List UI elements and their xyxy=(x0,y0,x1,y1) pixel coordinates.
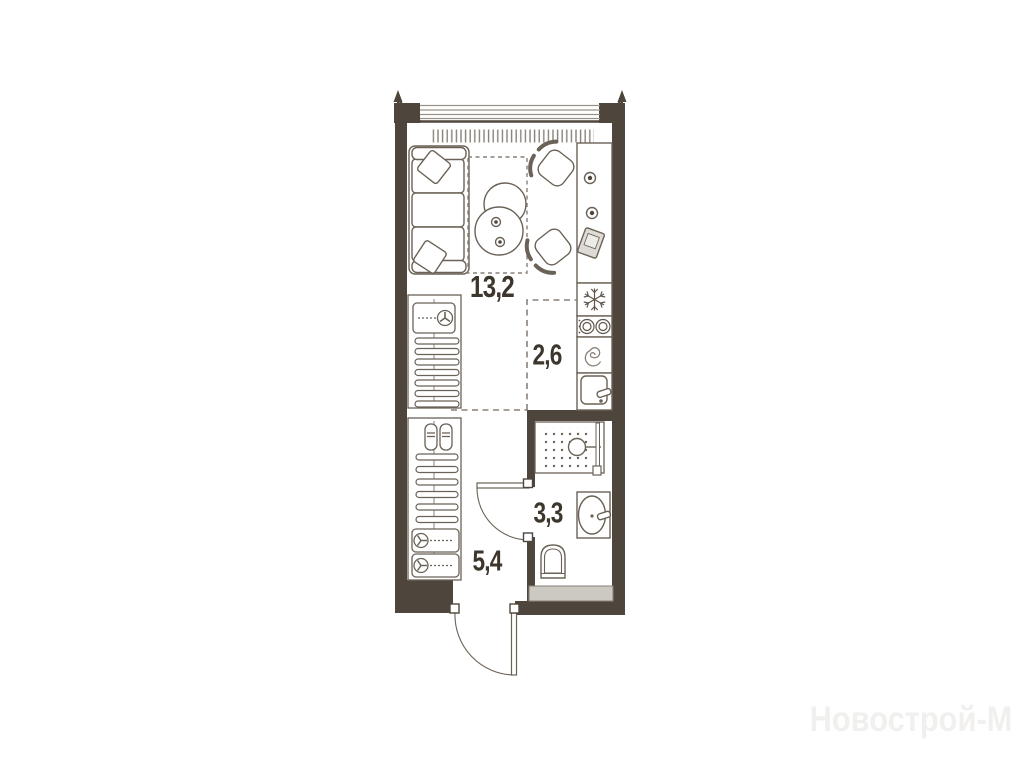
coffee-tables-icon xyxy=(475,183,526,255)
watermark: Новострой-М xyxy=(809,700,1012,740)
utility-shaft xyxy=(529,586,613,601)
hanger-icon xyxy=(415,338,459,407)
room-area-label-kitchen: 2,6 xyxy=(532,340,561,373)
kitchen-sink-icon xyxy=(581,376,612,404)
entry-door-swing-icon xyxy=(450,604,519,675)
room-area-label-hallway: 5,4 xyxy=(472,546,501,579)
room-area-label-living: 13,2 xyxy=(470,269,514,305)
chair-icon xyxy=(523,136,580,194)
wall-bottom-left xyxy=(395,580,453,613)
wall-left xyxy=(395,115,407,582)
floorplan-page: 13,2 2,6 3,3 5,4 Новострой-М xyxy=(0,0,1024,768)
wall-bathroom-top xyxy=(527,410,612,421)
bath-sink-icon xyxy=(577,492,611,538)
room-area-label-bathroom: 3,3 xyxy=(533,498,562,531)
wardrobe-upper xyxy=(408,295,461,408)
door-swing-icon xyxy=(477,479,533,542)
shower-mixer-icon xyxy=(593,466,601,475)
shower-icon xyxy=(535,422,604,475)
window-icon xyxy=(420,106,600,122)
radiator-icon xyxy=(431,128,594,144)
floorplan-canvas xyxy=(0,0,1024,768)
wall-bathroom-left-upper xyxy=(527,410,535,487)
wardrobe-lower xyxy=(408,418,461,580)
chair-icon xyxy=(520,221,577,279)
toilet-icon xyxy=(541,545,565,578)
desk-counter xyxy=(577,143,612,283)
wall-right xyxy=(612,115,625,615)
vacuum-box-icon xyxy=(413,303,455,333)
sofa-icon xyxy=(409,146,469,274)
washing-machine-icon xyxy=(577,337,612,373)
wall-bottom-right xyxy=(515,601,625,615)
shower-glass-icon xyxy=(596,423,600,471)
